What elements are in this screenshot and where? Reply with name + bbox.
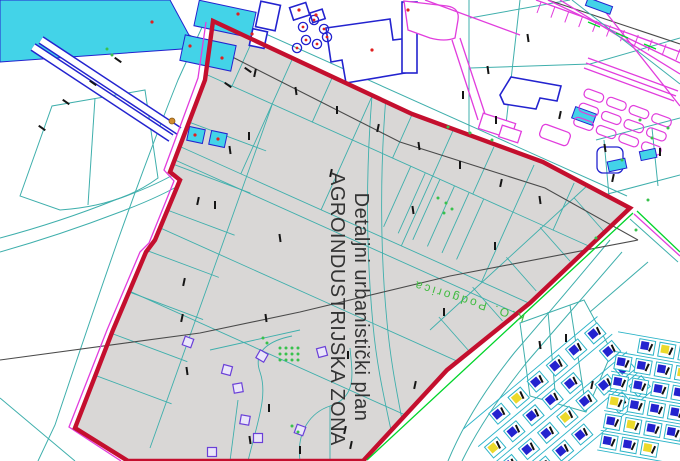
map-canvas <box>0 0 680 461</box>
urban-plan-map: Detaljni urbanistički plan AGROINDUSTRIJ… <box>0 0 680 461</box>
survey-marker <box>169 118 175 124</box>
